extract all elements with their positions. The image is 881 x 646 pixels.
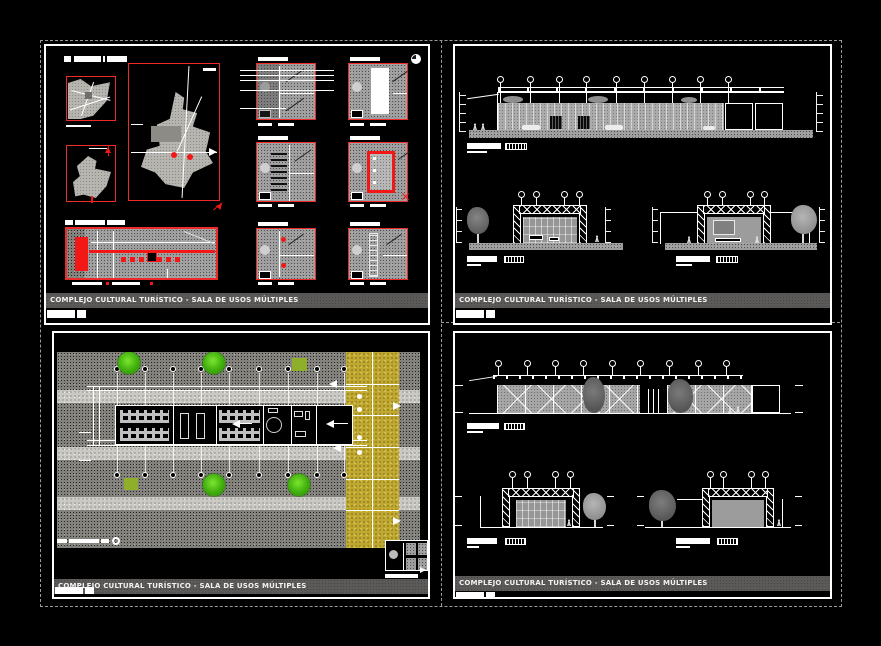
- grid-bubble: [357, 450, 362, 455]
- person-figure: [595, 235, 599, 242]
- scale-block: [258, 123, 272, 126]
- road-line: [131, 124, 143, 125]
- door-detail: [259, 192, 271, 200]
- open-bay: [755, 103, 783, 130]
- map-province-inset: [66, 145, 116, 202]
- map-label-block: [203, 68, 216, 71]
- red-tick: [150, 282, 153, 285]
- dimension-line: [652, 207, 658, 243]
- person-figure: [777, 519, 781, 526]
- entry-arrow: [393, 402, 405, 410]
- door-detail: [351, 110, 363, 118]
- end-section-truss: [702, 488, 774, 527]
- wall-line: [167, 269, 168, 279]
- wall-line: [279, 66, 280, 118]
- scale-block: [258, 204, 272, 207]
- wall-line: [403, 543, 404, 570]
- hatch-block: [418, 543, 427, 555]
- door-detail: [351, 271, 363, 279]
- tree: [791, 205, 817, 234]
- sheet-label-block: [103, 56, 105, 62]
- door-swing: [398, 151, 410, 160]
- bub-mark: [341, 366, 347, 372]
- scale-block: [370, 204, 386, 207]
- sheet-label-block: [74, 56, 101, 62]
- panel-title-text: COMPLEJO CULTURAL TURÍSTICO - SALA DE US…: [58, 582, 307, 590]
- stamp-box: [47, 310, 75, 318]
- fixture: [389, 550, 398, 559]
- detail-plan-5: [256, 228, 316, 280]
- door-swing: [392, 71, 407, 82]
- yl-mark: [346, 479, 399, 480]
- door-detail: [259, 271, 271, 279]
- viewport-elevation-sections-b: COMPLEJO CULTURAL TURÍSTICO - SALA DE US…: [453, 331, 832, 599]
- planter: [292, 358, 307, 371]
- scale-block: [112, 282, 140, 285]
- drawing-label-block: [467, 151, 487, 153]
- north-symbol-icon: [411, 54, 421, 64]
- panel-titlebar: COMPLEJO CULTURAL TURÍSTICO - SALA DE US…: [54, 579, 428, 594]
- door-mullion: [648, 389, 649, 413]
- fixture: [260, 163, 270, 173]
- red-tick: [106, 282, 109, 285]
- yl-mark: [346, 415, 399, 416]
- ladder-detail: [369, 233, 378, 277]
- drawing-label-block: [676, 538, 710, 544]
- entry-arrow: [329, 444, 341, 452]
- tree: [288, 474, 310, 496]
- detail-plan-1: [256, 63, 316, 120]
- plan-title-block: [107, 220, 125, 225]
- bub-mark: [142, 472, 148, 478]
- dot: [373, 169, 376, 172]
- dim-stub: [607, 496, 614, 497]
- tree: [203, 474, 225, 496]
- dimension-line: [605, 207, 611, 243]
- plan-title-block: [57, 539, 67, 543]
- door-louver: [578, 116, 590, 129]
- panel-title-text: COMPLEJO CULTURAL TURÍSTICO - SALA DE US…: [50, 296, 299, 304]
- viewport-divider-vertical: [441, 40, 442, 606]
- ground-line: [469, 413, 791, 414]
- partition: [173, 406, 174, 444]
- scale-block: [278, 282, 294, 285]
- bub-mark: [314, 366, 320, 372]
- person-figure: [473, 123, 477, 130]
- ground-band: [469, 130, 813, 138]
- bub-mark: [314, 472, 320, 478]
- sofa: [295, 431, 306, 437]
- drawing-label-block: [467, 264, 481, 266]
- city-mark: [85, 92, 92, 99]
- tree: [649, 490, 676, 521]
- detail-plan-2: [348, 63, 408, 120]
- bub-mark: [341, 472, 347, 478]
- viewport-elevation-sections-a: COMPLEJO CULTURAL TURÍSTICO - SALA DE US…: [453, 44, 832, 325]
- partition: [291, 406, 292, 444]
- tree: [668, 379, 693, 413]
- eave-line: [677, 499, 702, 500]
- person-figure: [481, 123, 485, 130]
- detail-title-block: [258, 136, 288, 140]
- bub-mark: [285, 366, 291, 372]
- tree-trunk: [594, 520, 596, 527]
- grid-bubble: [357, 394, 362, 399]
- scale-block: [278, 204, 294, 207]
- scale-block: [350, 204, 364, 207]
- drawing-label-block: [467, 431, 483, 433]
- mini-detail-plan: [385, 540, 428, 571]
- bub-mark: [198, 472, 204, 478]
- detail-plan-3: [256, 142, 316, 202]
- entry-arrow: [325, 380, 337, 388]
- stage-furniture: [715, 238, 741, 242]
- scale-block: [278, 123, 294, 126]
- bub-mark: [170, 366, 176, 372]
- flow-arrow-tail: [238, 423, 252, 424]
- detail-plan-4: [348, 142, 408, 202]
- scale-block: [370, 282, 386, 285]
- lead-mark: [240, 75, 334, 76]
- ground-band: [665, 243, 817, 250]
- work-table: [196, 413, 205, 439]
- wall-line: [279, 231, 280, 277]
- drawing-label-block: [676, 546, 690, 548]
- bub-mark: [142, 366, 148, 372]
- truss-top-chord: [508, 488, 574, 497]
- key-plan: [65, 227, 218, 280]
- truss-top-chord: [708, 488, 768, 497]
- panel-titlebar: COMPLEJO CULTURAL TURÍSTICO - SALA DE US…: [455, 576, 830, 591]
- dim-stub: [637, 525, 644, 526]
- tree: [583, 493, 606, 520]
- drawing-label-block: [467, 423, 499, 429]
- tree: [467, 207, 489, 234]
- stamp-box: [456, 310, 484, 318]
- stamp-box: [486, 310, 495, 318]
- door-swing: [286, 98, 305, 111]
- roof-edge-ticks: [493, 375, 743, 379]
- ground-band: [469, 243, 623, 250]
- scale-block: [258, 282, 272, 285]
- drawing-label-block: [467, 143, 501, 149]
- tree-trunk: [802, 234, 804, 243]
- dimension-line: [456, 207, 462, 243]
- dim-stub: [637, 496, 644, 497]
- highlight-zone-red: [367, 151, 395, 193]
- graphic-scale-bar: [505, 538, 526, 545]
- door-mullion: [658, 389, 659, 413]
- dim-stub: [455, 412, 463, 413]
- detail-title-block: [258, 222, 288, 226]
- plan-title-block: [69, 539, 99, 543]
- stamp-box: [55, 587, 83, 594]
- stamp-box: [77, 310, 86, 318]
- stage-furniture: [549, 237, 559, 241]
- bub-mark: [256, 366, 262, 372]
- roof-planting: [503, 96, 523, 103]
- site-dot: [187, 154, 193, 160]
- wall-edge: [480, 496, 481, 527]
- wall-line: [393, 93, 407, 94]
- panel-title-text: COMPLEJO CULTURAL TURÍSTICO - SALA DE US…: [459, 296, 708, 304]
- scale-bar: [66, 125, 91, 127]
- fixture: [352, 245, 362, 255]
- dark-zone: [257, 64, 279, 118]
- viewport-site-plan: COMPLEJO CULTURAL TURÍSTICO - SALA DE US…: [52, 331, 430, 599]
- colonnade-line: [87, 390, 367, 391]
- door-swing: [295, 149, 312, 161]
- door-detail: [351, 192, 363, 200]
- hatch-block: [406, 543, 416, 555]
- drawing-label-block: [467, 546, 479, 548]
- wall-line: [383, 255, 407, 256]
- red-dot: [281, 263, 286, 268]
- tree: [118, 352, 140, 374]
- leader-line: [240, 108, 286, 109]
- truss-top-chord: [703, 205, 765, 214]
- sheet-label-block: [64, 56, 71, 62]
- door-swing: [386, 234, 401, 245]
- viewport-location-details: COMPLEJO CULTURAL TURÍSTICO - SALA DE US…: [44, 44, 430, 325]
- planter: [124, 478, 138, 490]
- flow-arrow-tail: [332, 423, 348, 424]
- entry-arrow: [393, 517, 405, 525]
- lead-mark: [240, 80, 334, 81]
- lead-mark: [240, 70, 334, 71]
- red-dot: [281, 237, 286, 242]
- partition: [316, 406, 317, 444]
- fixture: [352, 163, 362, 173]
- person-figure: [687, 236, 691, 243]
- wall-line: [280, 93, 314, 94]
- flow-arrow: [322, 420, 334, 428]
- map-landmass: [73, 156, 111, 198]
- yl-mark: [346, 510, 399, 511]
- plan-title-block: [65, 220, 73, 225]
- plan-title-block: [75, 220, 105, 225]
- stage-wall: [712, 500, 764, 527]
- drawing-label-block: [676, 256, 710, 262]
- seating-rows: [120, 410, 169, 423]
- roof-planting: [588, 96, 608, 103]
- scale-block: [350, 282, 364, 285]
- grid-bubble: [357, 407, 362, 412]
- detail-title-block: [350, 57, 380, 61]
- map-district: [151, 126, 181, 142]
- location-tick: [91, 196, 93, 203]
- dim-stub: [79, 432, 91, 433]
- building-plan: [115, 405, 353, 445]
- scale-block: [72, 282, 102, 285]
- stage-screen: [713, 220, 735, 235]
- graphic-scale-bar: [716, 256, 738, 263]
- dim-stub: [607, 525, 614, 526]
- colonnade-line: [87, 445, 367, 446]
- lead-mark: [240, 90, 334, 91]
- dim-stub: [795, 496, 802, 497]
- lobby-desk: [266, 417, 282, 433]
- scale-block: [370, 123, 386, 126]
- stage-mark: [147, 252, 157, 262]
- parking-aisle-line: [372, 352, 373, 548]
- detail-plan-6: [348, 228, 408, 280]
- dimension-line: [816, 92, 823, 132]
- bub-mark: [256, 472, 262, 478]
- sofa: [294, 411, 303, 417]
- site-dot: [171, 152, 177, 158]
- map-region-inset: [66, 76, 116, 121]
- wall-edge: [660, 212, 661, 244]
- bub-mark: [114, 472, 120, 478]
- ground-line: [480, 527, 603, 528]
- truss-top-chord: [519, 205, 581, 214]
- bub-mark: [226, 366, 232, 372]
- site-plan-drawing: [57, 352, 420, 548]
- graphic-scale-bar: [505, 143, 527, 150]
- panel-titlebar: COMPLEJO CULTURAL TURÍSTICO - SALA DE US…: [455, 293, 830, 308]
- seating-rows: [219, 428, 260, 441]
- end-wall-line: [93, 386, 94, 445]
- section-stage-truss: [697, 205, 771, 244]
- drawing-label-block: [676, 264, 692, 266]
- detail-title-block: [350, 136, 380, 140]
- dim-stub: [795, 525, 802, 526]
- wall-line: [113, 231, 114, 278]
- partition: [263, 406, 264, 444]
- wall-line: [97, 231, 98, 278]
- yl-mark: [346, 384, 399, 385]
- dim-stub: [79, 460, 91, 461]
- drawing-label-block: [467, 256, 497, 262]
- dim-stub: [455, 525, 462, 526]
- wall-edge: [782, 499, 783, 527]
- ground-line: [645, 527, 791, 528]
- stamp-box: [456, 592, 484, 598]
- section-stage-truss: [513, 205, 587, 244]
- sofa: [305, 411, 310, 420]
- stamp-box: [85, 587, 94, 594]
- dim-stub: [795, 412, 803, 413]
- facade-edge: [497, 92, 498, 130]
- partition: [216, 406, 217, 444]
- scale-block: [350, 123, 364, 126]
- north-symbol-icon: [112, 537, 120, 545]
- north-arrow-icon: [105, 144, 111, 153]
- work-table: [180, 413, 189, 439]
- detail-title-block: [350, 222, 380, 226]
- dim-stub: [455, 385, 463, 386]
- direction-arrow: [209, 148, 221, 156]
- open-bay: [725, 103, 753, 130]
- plan-title-block: [101, 539, 109, 543]
- wall-line: [91, 242, 215, 243]
- fixture: [260, 245, 270, 255]
- dim-stub: [455, 496, 462, 497]
- dot: [373, 157, 376, 160]
- wall-line: [280, 255, 314, 256]
- canopy-cable: [467, 94, 499, 99]
- sheet-label-block: [107, 56, 127, 62]
- dimension-line: [459, 92, 466, 132]
- cad-sheet-canvas: COMPLEJO CULTURAL TURÍSTICO - SALA DE US…: [0, 0, 881, 646]
- stage-furniture: [529, 235, 543, 240]
- drawing-label-block: [467, 538, 497, 544]
- panel-title-text: COMPLEJO CULTURAL TURÍSTICO - SALA DE US…: [459, 579, 708, 587]
- graphic-scale-bar: [717, 538, 738, 545]
- bub-mark: [170, 472, 176, 478]
- open-bay: [371, 68, 389, 114]
- seating-rows: [120, 428, 169, 441]
- dim-stub: [795, 385, 803, 386]
- door-mullion: [653, 389, 654, 413]
- scale-block: [385, 574, 418, 578]
- stamp-box: [486, 592, 495, 598]
- dimension-line: [819, 207, 825, 243]
- tree: [583, 377, 605, 413]
- glass-wall: [516, 500, 566, 527]
- open-bay: [752, 385, 780, 413]
- graphic-scale-bar: [504, 423, 525, 430]
- end-wall-line: [99, 386, 100, 445]
- door-swing: [288, 234, 303, 245]
- map-city-inset: [128, 63, 220, 201]
- wall-line: [290, 173, 314, 174]
- arrow-icon: [420, 567, 429, 573]
- tree-trunk: [477, 234, 479, 243]
- tree: [203, 352, 225, 374]
- detail-title-block: [258, 57, 288, 61]
- flow-arrow: [228, 420, 240, 428]
- roof-line: [498, 91, 784, 93]
- panel-titlebar: COMPLEJO CULTURAL TURÍSTICO - SALA DE US…: [46, 293, 428, 308]
- lobby-furniture: [268, 408, 278, 413]
- red-stage-block: [75, 237, 88, 271]
- stair-rungs: [271, 151, 287, 191]
- yl-mark: [346, 447, 399, 448]
- dot: [373, 181, 376, 184]
- door-louver: [550, 116, 562, 129]
- bub-mark: [226, 472, 232, 478]
- graphic-scale-bar: [504, 256, 524, 263]
- fixture: [352, 82, 362, 92]
- braced-wall: [497, 385, 640, 413]
- hatch-block: [406, 558, 416, 570]
